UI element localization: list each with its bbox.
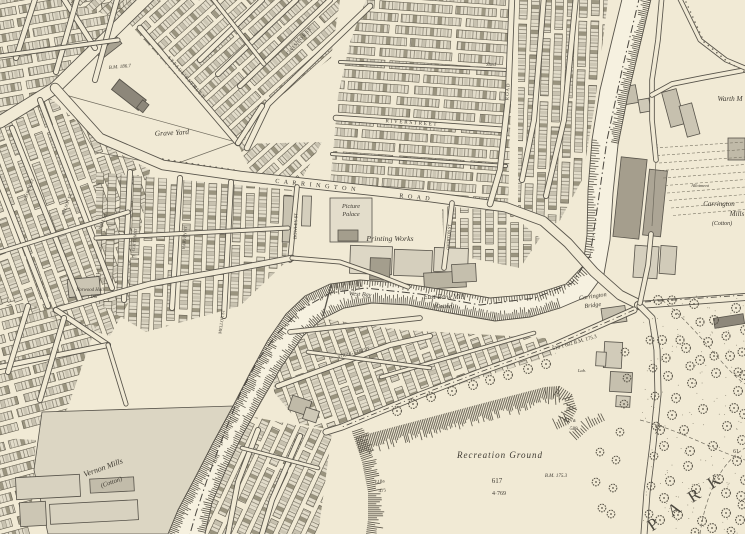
svg-text:61: 61 (733, 449, 739, 455)
svg-text:Norwood Hall: Norwood Hall (75, 288, 104, 293)
svg-text:Picture: Picture (341, 203, 360, 210)
svg-text:·588: ·588 (568, 427, 578, 432)
svg-text:4·769: 4·769 (492, 491, 506, 497)
svg-text:617a: 617a (564, 418, 576, 424)
svg-text:Grave Yard: Grave Yard (155, 127, 190, 138)
svg-text:Carrington: Carrington (703, 200, 735, 208)
svg-text:Allotment: Allotment (690, 183, 710, 188)
svg-text:Shed: Shed (486, 63, 496, 68)
svg-text:617: 617 (492, 477, 503, 485)
svg-text:BOWLEY ST: BOWLEY ST (293, 213, 299, 239)
svg-text:East Bank Mill: East Bank Mill (423, 294, 465, 301)
svg-text:Inn: Inn (90, 295, 98, 300)
svg-text:(Cotton): (Cotton) (712, 220, 732, 227)
svg-text:B.M. 175.3: B.M. 175.3 (545, 474, 568, 479)
svg-text:(Cotton): (Cotton) (434, 303, 454, 310)
svg-text:Palace: Palace (341, 211, 359, 218)
svg-text:Printing Works: Printing Works (365, 234, 413, 243)
svg-text:Mills: Mills (729, 210, 745, 218)
svg-text:Warth M: Warth M (717, 95, 743, 103)
svg-text:Recreation Ground: Recreation Ground (456, 450, 543, 460)
svg-text:Lab.: Lab. (577, 368, 586, 373)
